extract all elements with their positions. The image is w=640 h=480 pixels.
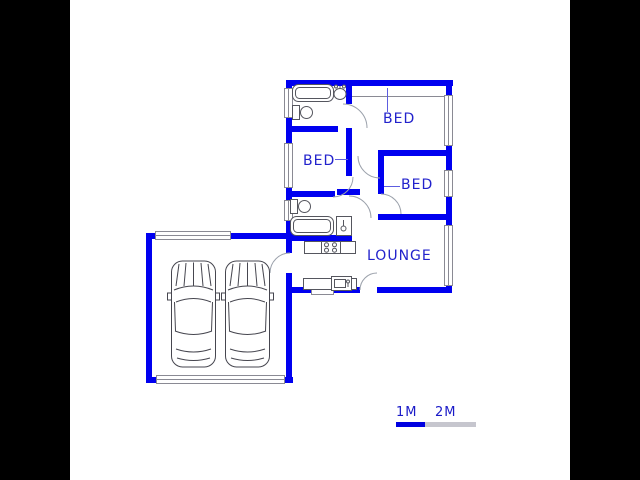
scale-bar-1m-segment: [396, 422, 425, 427]
scale-bar-2m-segment: [425, 422, 476, 427]
door-arc-garage: [270, 253, 290, 273]
toilet-icon: [293, 106, 313, 120]
window: [445, 171, 453, 197]
basin-icon: [334, 85, 346, 100]
window: [285, 144, 293, 188]
wall-bed-right-bottom: [378, 214, 452, 220]
door-arc-bathroom1: [343, 104, 367, 128]
toilet-icon: [291, 200, 311, 214]
window: [156, 232, 231, 240]
wall-bath1-divider: [346, 80, 352, 104]
wall-bath1-bottom: [286, 126, 338, 132]
window: [285, 89, 293, 118]
car-icon: [168, 261, 220, 367]
wall-bed-right-top: [378, 150, 452, 156]
scale-label-2m: 2M: [435, 405, 457, 420]
shower-icon: [337, 217, 352, 236]
kitchen-fixtures: [304, 242, 357, 291]
wall-bed-middle-bottom: [286, 191, 335, 197]
door-arc-bathroom2: [349, 196, 371, 218]
bathroom2-fixtures: [291, 200, 352, 236]
scale-label-1m: 1M: [396, 405, 418, 420]
window: [445, 96, 453, 146]
floor-plan-page: BED BED BED LOUNGE 1M 2M: [0, 0, 640, 480]
car-icon: [222, 261, 274, 367]
door-arc-bed-top: [358, 156, 380, 178]
wall-bed-middle-east: [346, 128, 352, 176]
wall-garage-left: [146, 233, 152, 383]
floor-plan-drawing: [0, 0, 640, 480]
bathtub-icon: [291, 217, 334, 236]
room-label-bed-top: BED: [383, 111, 415, 128]
leader-lines: [335, 88, 400, 187]
door-arc-lounge: [360, 273, 377, 290]
wall-left-lower: [286, 273, 292, 383]
kitchen-sink-icon: [332, 277, 352, 291]
wall-lounge-bottom-right: [377, 287, 452, 293]
room-label-bed-middle: BED: [303, 153, 335, 170]
garage-door: [157, 376, 285, 384]
room-label-bed-right: BED: [401, 177, 433, 194]
window: [445, 226, 453, 286]
stove-icon: [322, 242, 341, 254]
room-label-lounge: LOUNGE: [367, 248, 432, 265]
scale-bar: [396, 422, 476, 427]
bathroom1-fixtures: [293, 85, 347, 120]
bathtub-icon: [293, 85, 334, 102]
door-arc-bed-right: [381, 194, 401, 214]
wall-bed-right-west: [378, 150, 384, 194]
